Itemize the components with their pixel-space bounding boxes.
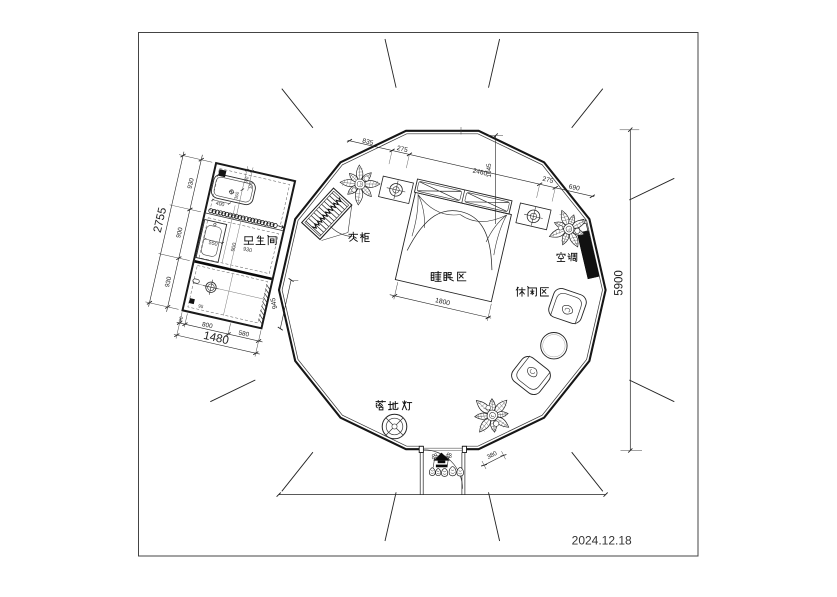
svg-text:5900: 5900 — [614, 270, 626, 296]
svg-text:2024.12.18: 2024.12.18 — [572, 534, 632, 548]
svg-text:1045: 1045 — [486, 163, 493, 178]
